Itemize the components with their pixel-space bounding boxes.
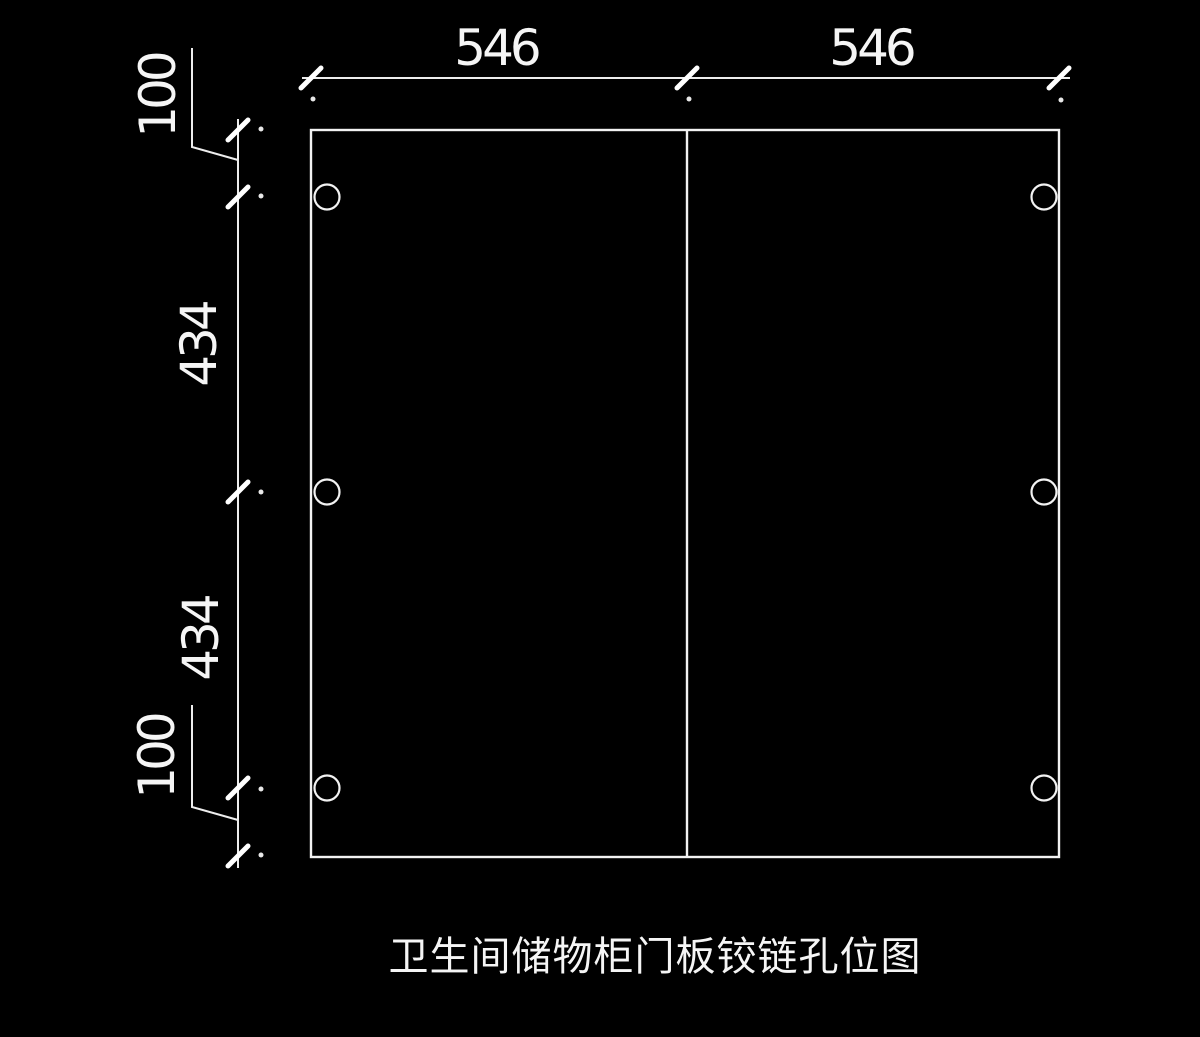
hinge-hole-circle [1032,185,1057,210]
dimension-point-dot [687,97,692,102]
hinge-hole-circle [315,185,340,210]
leader-line-top [192,48,238,160]
dimension-point-dot [259,490,264,495]
cad-drawing-viewport: 546 546 100 434 434 100 卫生间储物柜门板铰链孔位图 [0,0,1200,1037]
dimension-point-dot [311,97,316,102]
dimension-label-left-100-top: 100 [129,53,187,138]
hinge-hole-circle [1032,776,1057,801]
drawing-title: 卫生间储物柜门板铰链孔位图 [389,934,922,980]
dimension-label-top-right: 546 [829,19,914,77]
dimension-label-left-434-top: 434 [170,302,228,387]
dimension-point-dot [259,194,264,199]
dimension-point-dot [1059,98,1064,103]
door-panel-outline [311,130,1059,857]
cad-drawing-canvas: 546 546 100 434 434 100 卫生间储物柜门板铰链孔位图 [0,0,1200,1037]
hinge-hole-circle [315,480,340,505]
dimension-point-dot [259,787,264,792]
dimension-label-top-left: 546 [454,19,539,77]
leader-line-bottom [192,705,238,820]
hinge-hole-circle [1032,480,1057,505]
dimension-point-dot [259,853,264,858]
hinge-hole-circle [315,776,340,801]
dimension-point-dot [259,127,264,132]
dimension-label-left-100-bottom: 100 [128,714,186,799]
dimension-label-left-434-bottom: 434 [172,596,230,681]
